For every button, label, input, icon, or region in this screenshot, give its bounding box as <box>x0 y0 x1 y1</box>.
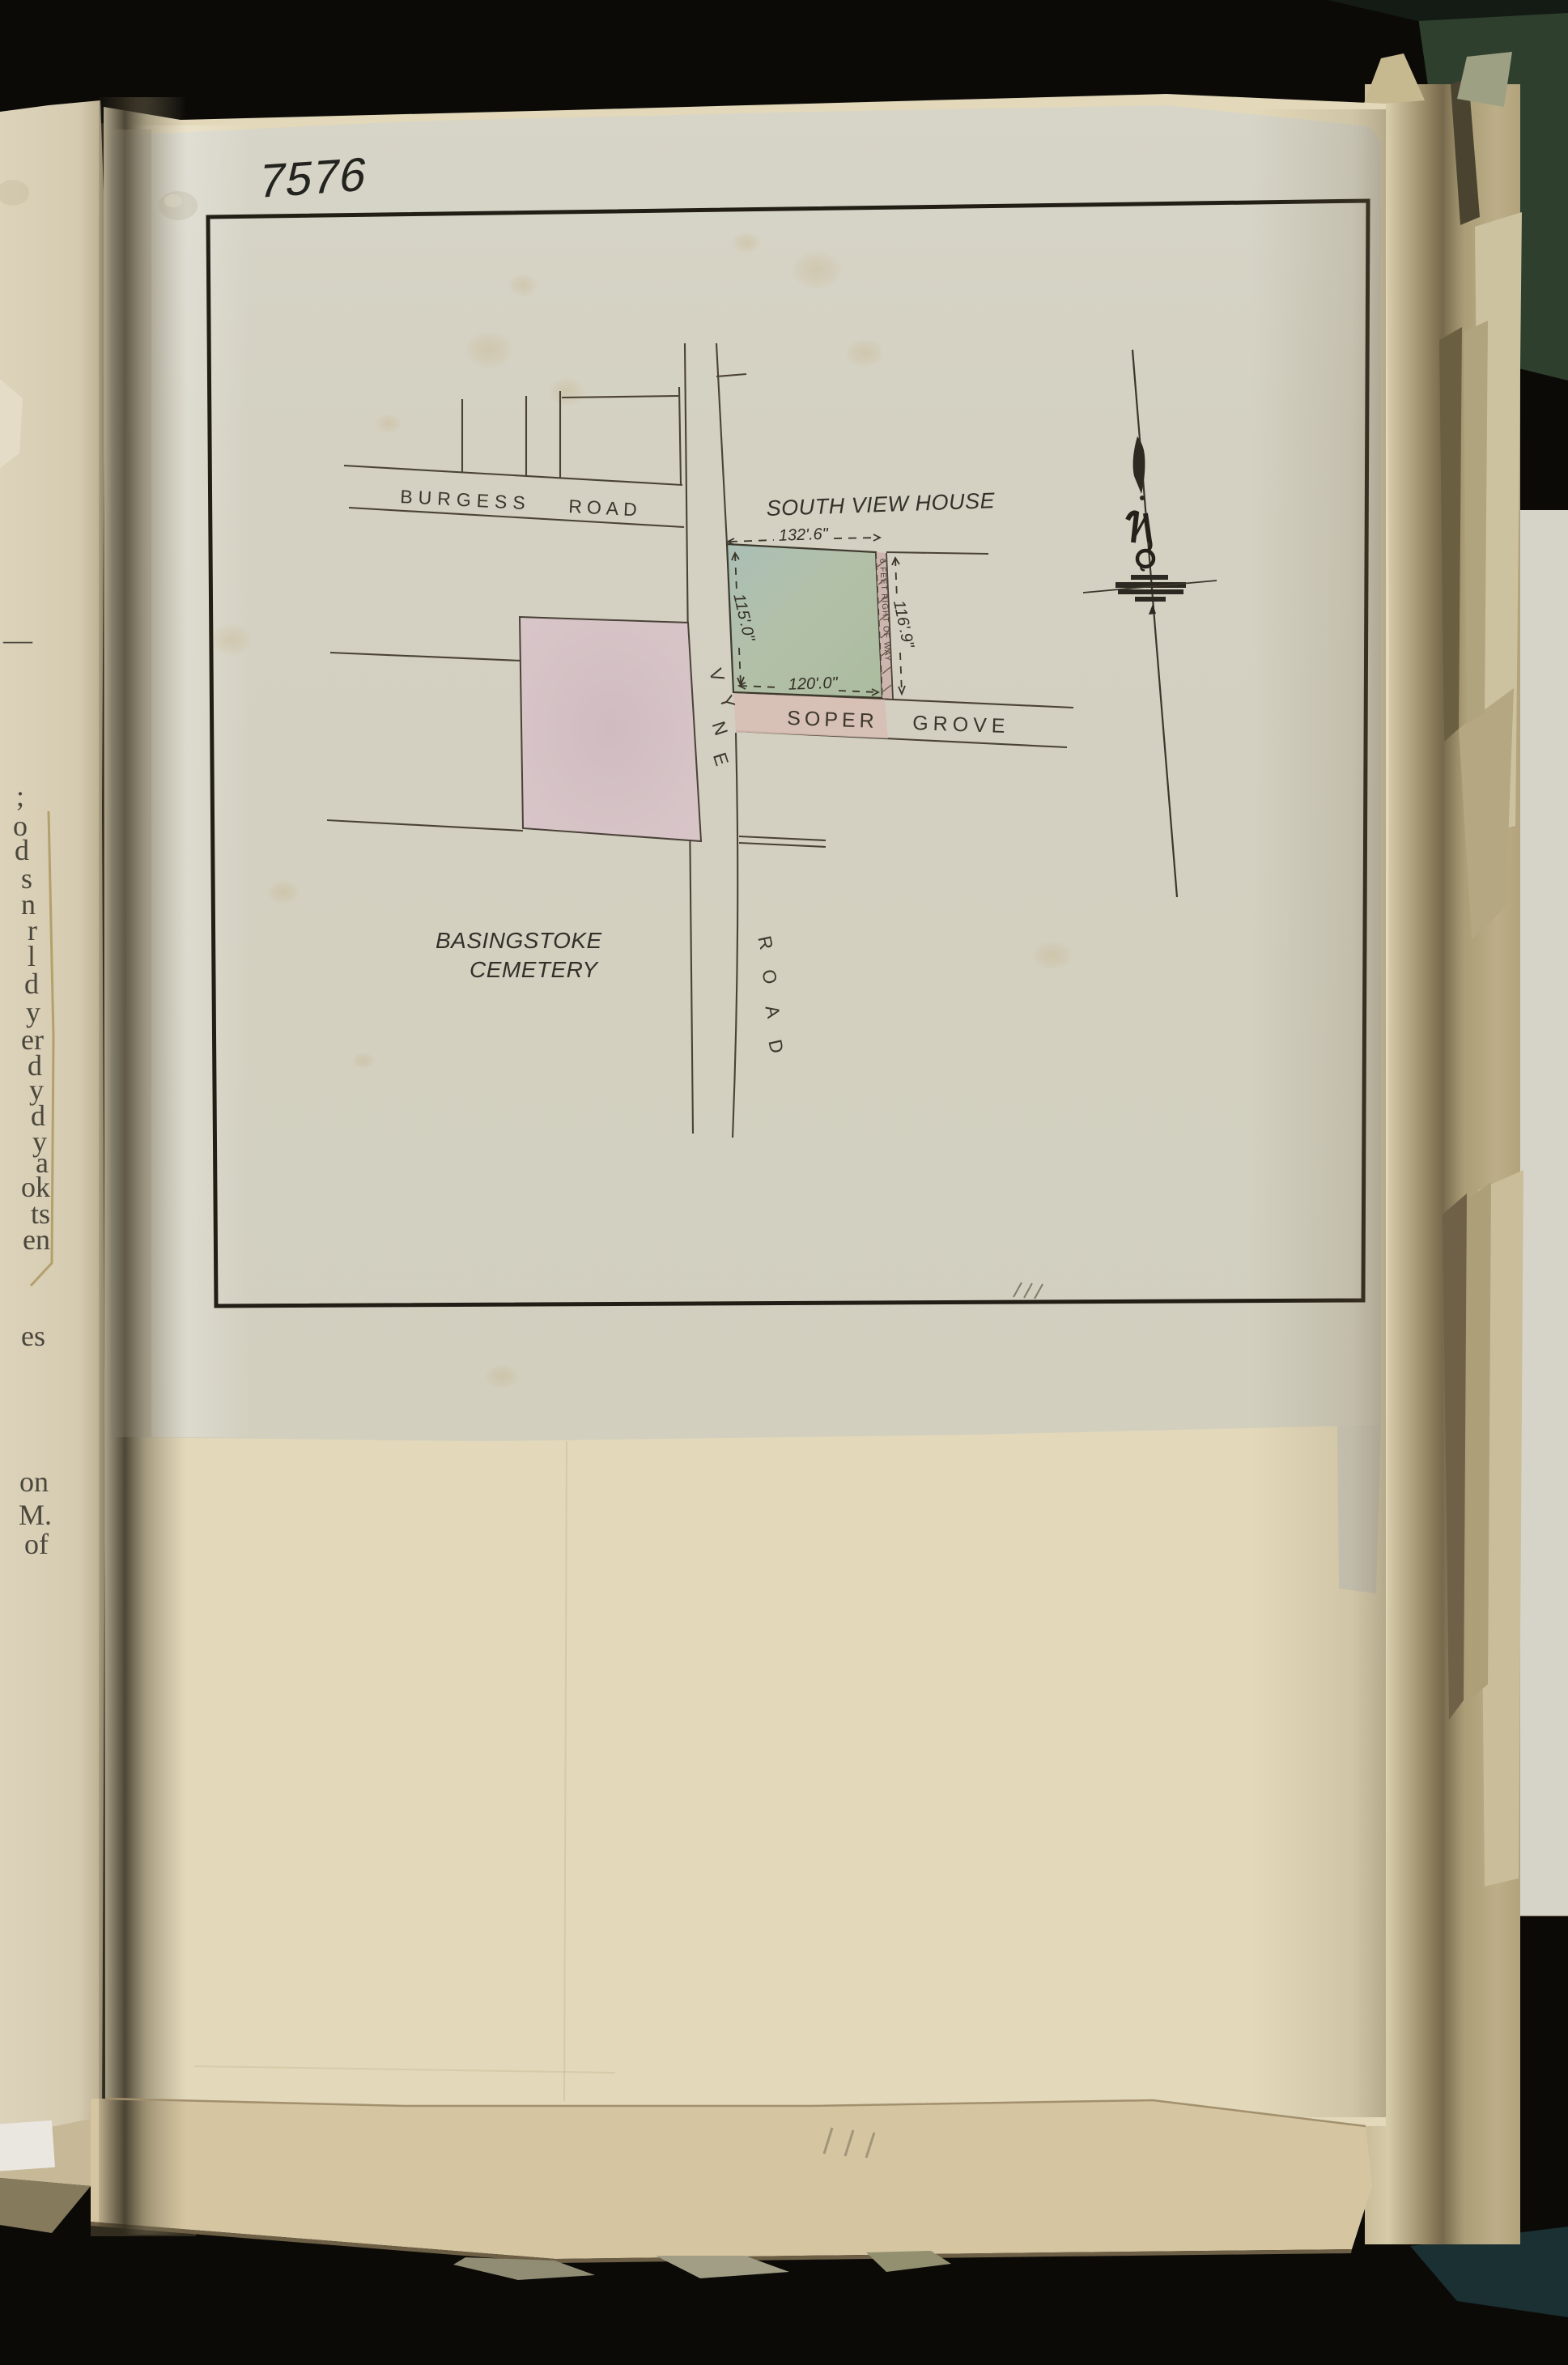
svg-text:SOPER: SOPER <box>787 707 878 733</box>
svg-text:es: es <box>21 1320 45 1352</box>
svg-text:—: — <box>2 623 33 656</box>
svg-text:;: ; <box>16 780 24 812</box>
svg-text:120'.0": 120'.0" <box>788 674 839 694</box>
svg-text:132'.6": 132'.6" <box>778 525 829 545</box>
svg-text:GROVE: GROVE <box>912 712 1010 738</box>
svg-text:en: en <box>23 1223 50 1256</box>
svg-text:d: d <box>15 834 29 866</box>
svg-text:of: of <box>24 1528 49 1560</box>
svg-text:CEMETERY: CEMETERY <box>470 957 599 982</box>
svg-text:BASINGSTOKE: BASINGSTOKE <box>436 928 602 953</box>
svg-text:on: on <box>19 1465 49 1498</box>
svg-text:d: d <box>24 968 39 1000</box>
svg-text:ROAD: ROAD <box>568 496 643 521</box>
svg-text:M.: M. <box>19 1499 52 1531</box>
svg-text:7576: 7576 <box>255 148 372 208</box>
